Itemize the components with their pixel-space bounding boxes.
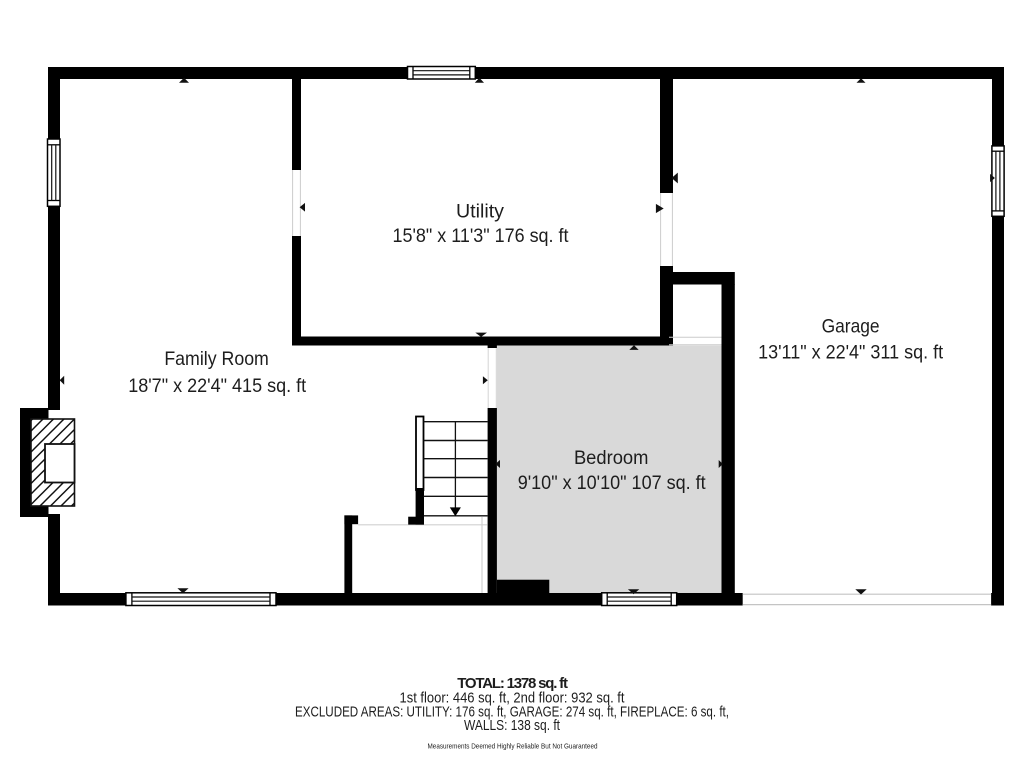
svg-text:Measurements Deemed Highly Rel: Measurements Deemed Highly Reliable But … — [428, 742, 598, 751]
svg-text:15'8" x 11'3" 176 sq. ft: 15'8" x 11'3" 176 sq. ft — [393, 225, 570, 247]
svg-text:13'11" x 22'4" 311 sq. ft: 13'11" x 22'4" 311 sq. ft — [758, 342, 944, 364]
svg-text:Bedroom: Bedroom — [574, 447, 649, 469]
svg-text:Garage: Garage — [822, 316, 880, 338]
svg-text:Utility: Utility — [456, 201, 504, 223]
svg-text:9'10" x 10'10" 107 sq. ft: 9'10" x 10'10" 107 sq. ft — [518, 472, 707, 494]
svg-text:18'7" x 22'4" 415 sq. ft: 18'7" x 22'4" 415 sq. ft — [128, 375, 307, 397]
svg-text:Family Room: Family Room — [164, 348, 269, 370]
svg-text:WALLS: 138 sq. ft: WALLS: 138 sq. ft — [464, 717, 561, 734]
